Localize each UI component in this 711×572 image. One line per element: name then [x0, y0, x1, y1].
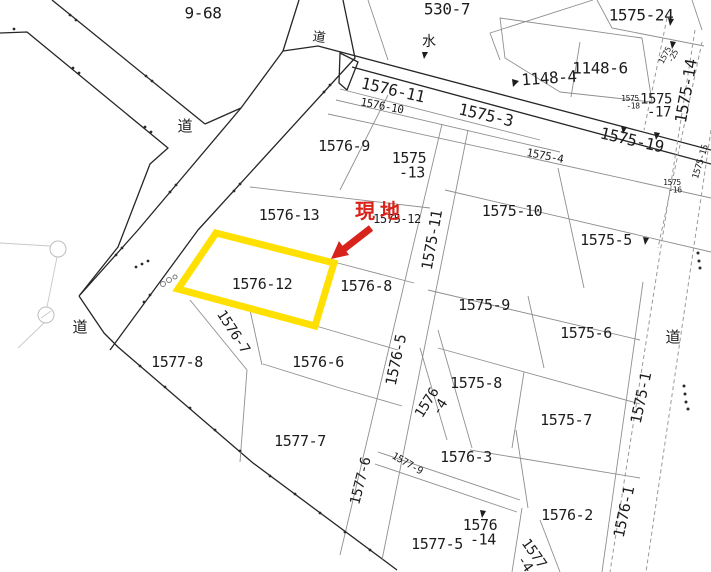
map-canvas: 9-68道530-7水1575-241148-41148-61575-25157… — [0, 0, 711, 572]
parcel-label-1575-6: 1575-6 — [560, 324, 612, 342]
highlight-parcel-label: 1576-12 — [232, 275, 292, 293]
parcel-label-1577-5: 1577-5 — [411, 535, 463, 553]
parcel-label-1576-13: 1576-13 — [259, 206, 319, 224]
parcel-label-1576-14: 1576-14 — [463, 516, 498, 548]
site-marker-text: 現地 — [355, 199, 405, 223]
road-label-left: 道 — [177, 117, 192, 135]
parcel-label-1575-10: 1575-10 — [482, 202, 543, 220]
parcel-label-1575-1: 1575-1 — [627, 370, 655, 425]
parcel-label-1575-13: 1575-13 — [392, 149, 427, 181]
road-label-east: 道 — [665, 328, 680, 346]
parcel-label-1575-16: 1575-16 — [663, 178, 682, 195]
cadastral-map: 9-68道530-7水1575-241148-41148-61575-25157… — [0, 0, 711, 572]
parcel-label-1575-5: 1575-5 — [580, 231, 632, 249]
site-arrow-shaft — [344, 228, 371, 249]
parcel-label-1148-6: 1148-6 — [572, 59, 627, 78]
parcel-label-1575-8: 1575-8 — [450, 374, 502, 392]
parcel-label-1576-9: 1576-9 — [318, 137, 370, 155]
parcel-label-1575-24: 1575-24 — [609, 6, 674, 25]
parcel-label-1576-5: 1576-5 — [382, 333, 410, 387]
parcel-label-1576-1: 1576-1 — [610, 484, 638, 539]
parcel-labels: 9-68道530-7水1575-241148-41148-61575-25157… — [72, 0, 710, 572]
parcel-label-1576-7: 1576-7 — [213, 307, 253, 356]
parcel-label-1148-4: 1148-4 — [521, 67, 578, 90]
parcel-label-1575-7: 1575-7 — [540, 411, 592, 429]
parcel-label-1576-4: 1576-4 — [412, 385, 454, 428]
parcel-label-1575-18: 1575-18 — [621, 94, 640, 111]
water-mark-label: 水 — [422, 34, 436, 50]
parcel-label-1576-6: 1576-6 — [292, 353, 344, 371]
parcel-label-1577-7: 1577-7 — [274, 432, 326, 450]
parcel-label-1577-6: 1577-6 — [347, 456, 374, 507]
parcel-label-1575-9: 1575-9 — [458, 296, 510, 314]
parcel-label-1575-17: 1575-17 — [640, 91, 672, 120]
parcel-label-1575-14: 1575-14 — [671, 58, 701, 125]
parcel-label-1575-15: 1575-15 — [691, 144, 711, 181]
boundary-arrow-marks — [422, 18, 676, 518]
road-label-west: 道 — [72, 318, 87, 336]
parcel-label-1577-4: 1577-4 — [507, 536, 549, 572]
parcel-label-1576-8: 1576-8 — [340, 277, 392, 295]
parcel-label-9-68: 9-68 — [185, 4, 222, 23]
parcel-label-1575-4: 1575-4 — [525, 146, 565, 166]
parcel-label-530-7: 530-7 — [424, 0, 470, 19]
parcel-label-1577-9: 1577-9 — [390, 451, 425, 478]
site-arrow — [331, 228, 371, 259]
parcel-label-1576-3: 1576-3 — [440, 448, 492, 466]
parcel-label-1577-8: 1577-8 — [151, 353, 203, 371]
parcel-label-1576-2: 1576-2 — [541, 506, 593, 524]
road-label-top: 道 — [312, 30, 327, 47]
